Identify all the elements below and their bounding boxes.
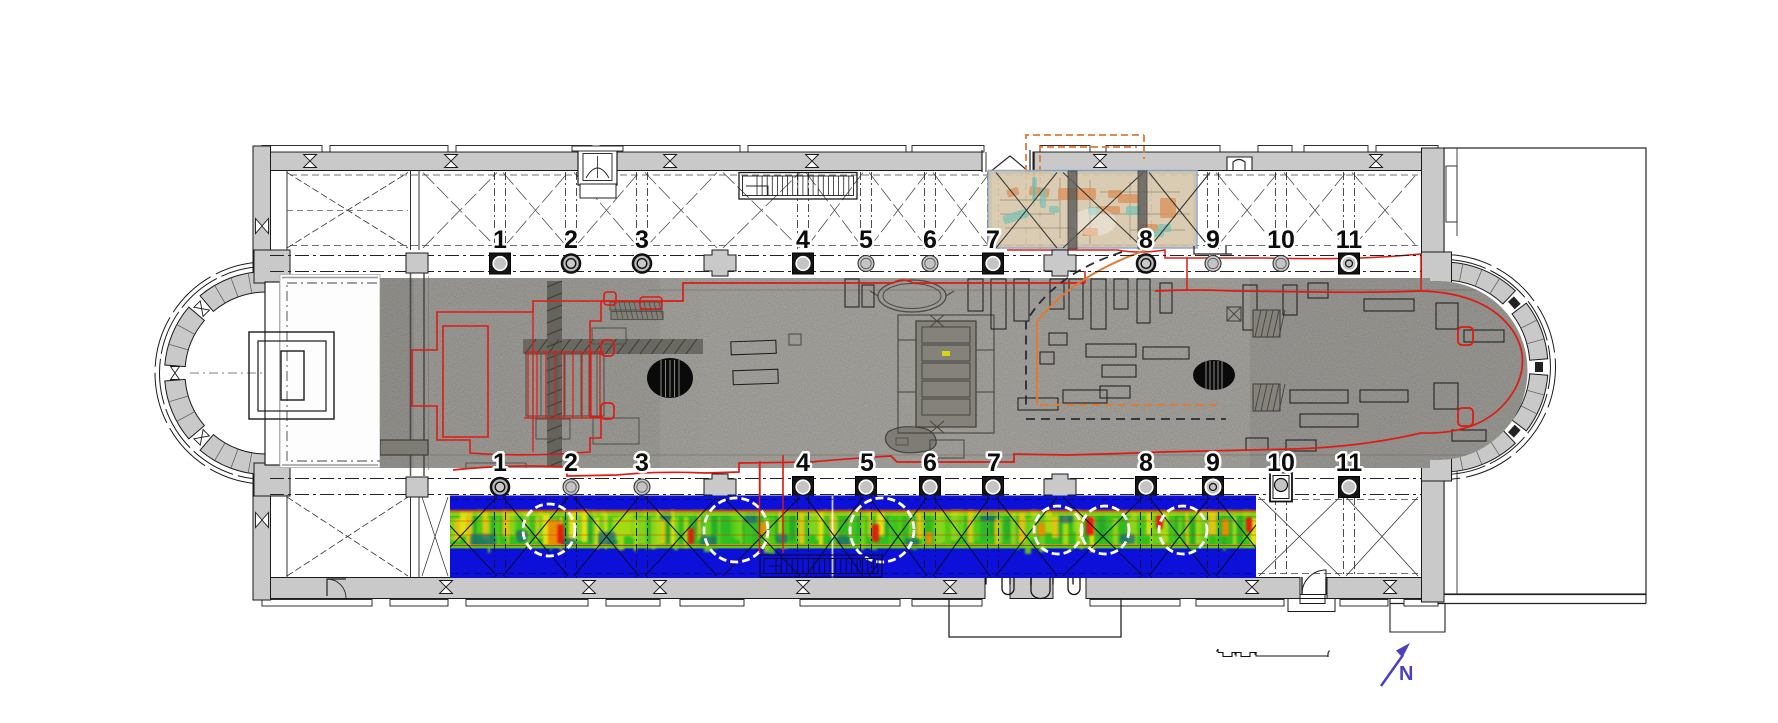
svg-text:8: 8 (1139, 226, 1153, 254)
svg-text:3: 3 (635, 226, 649, 254)
svg-text:9: 9 (1206, 449, 1220, 477)
svg-text:5: 5 (860, 449, 874, 477)
svg-text:1: 1 (493, 226, 507, 254)
svg-text:2: 2 (564, 226, 578, 254)
svg-text:3: 3 (635, 449, 649, 477)
svg-text:7: 7 (986, 226, 1000, 254)
svg-text:4: 4 (796, 226, 810, 254)
svg-text:10: 10 (1267, 226, 1295, 254)
svg-text:9: 9 (1206, 226, 1220, 254)
svg-text:6: 6 (923, 226, 937, 254)
svg-text:N: N (1399, 663, 1413, 685)
svg-text:2: 2 (564, 449, 578, 477)
svg-text:1: 1 (493, 449, 507, 477)
svg-text:10: 10 (1267, 449, 1295, 477)
svg-text:6: 6 (923, 449, 937, 477)
svg-text:11: 11 (1336, 449, 1363, 477)
svg-text:11: 11 (1336, 226, 1363, 254)
svg-text:5: 5 (859, 226, 873, 254)
svg-text:8: 8 (1139, 449, 1153, 477)
svg-text:4: 4 (796, 449, 810, 477)
svg-text:7: 7 (987, 449, 1001, 477)
